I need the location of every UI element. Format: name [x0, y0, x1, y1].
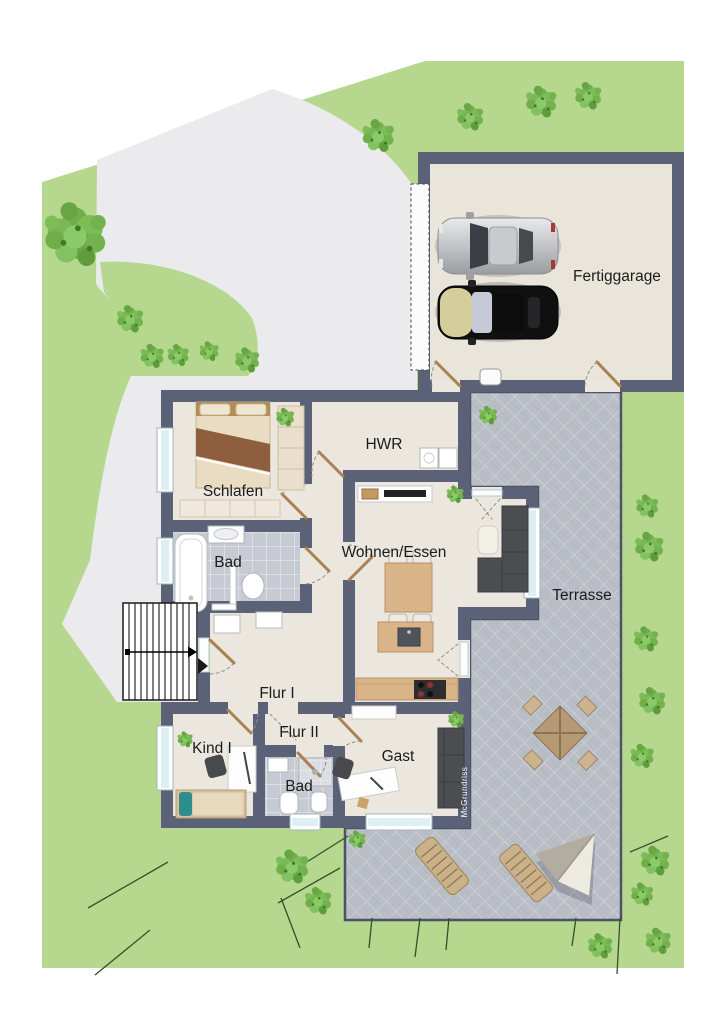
utility-appliances — [420, 448, 457, 468]
window-guest — [366, 814, 432, 830]
guest-dresser-icon — [352, 706, 396, 719]
sink-icon — [268, 758, 288, 772]
car-black-icon — [435, 280, 561, 345]
watermark-text: McGrundriss — [460, 767, 469, 818]
label-bath-upper: Bad — [214, 554, 242, 571]
exterior-stairs — [123, 603, 197, 700]
pillow-icon — [179, 792, 192, 816]
floor-plan-canvas: Fertiggarage HWR Schlafen Bad Wohnen/Ess… — [0, 0, 719, 1019]
window-bath-upper — [157, 538, 173, 584]
window-bedroom — [157, 428, 173, 492]
tv-icon — [384, 490, 426, 497]
label-bedroom: Schlafen — [203, 483, 263, 500]
side-table-icon — [478, 526, 498, 554]
label-utility: HWR — [365, 436, 402, 453]
window-bath-lower — [290, 814, 320, 830]
label-garage: Fertiggarage — [573, 268, 661, 285]
label-hall-2: Flur II — [279, 724, 319, 741]
vent-box — [480, 369, 501, 385]
bidet-icon — [311, 792, 327, 812]
toilet-icon — [242, 573, 264, 599]
floor-plan-page: Fertiggarage HWR Schlafen Bad Wohnen/Ess… — [0, 0, 719, 1019]
toilet-icon — [280, 792, 298, 814]
label-hall-1: Flur I — [259, 685, 294, 702]
shower-drain — [312, 769, 318, 775]
desk-icon — [228, 746, 256, 792]
car-silver-icon — [435, 212, 561, 280]
label-child-room: Kind I — [192, 740, 232, 757]
label-terrace: Terrasse — [552, 587, 611, 604]
label-living-dining: Wohnen/Essen — [342, 544, 447, 561]
label-guest-room: Gast — [382, 748, 415, 765]
label-bath-lower: Bad — [285, 778, 313, 795]
dining-table-icon — [385, 563, 432, 612]
garage-sectional-door — [411, 184, 429, 370]
double-bed-icon — [196, 402, 270, 488]
window-child-room — [157, 726, 173, 790]
books-icon — [362, 489, 378, 499]
